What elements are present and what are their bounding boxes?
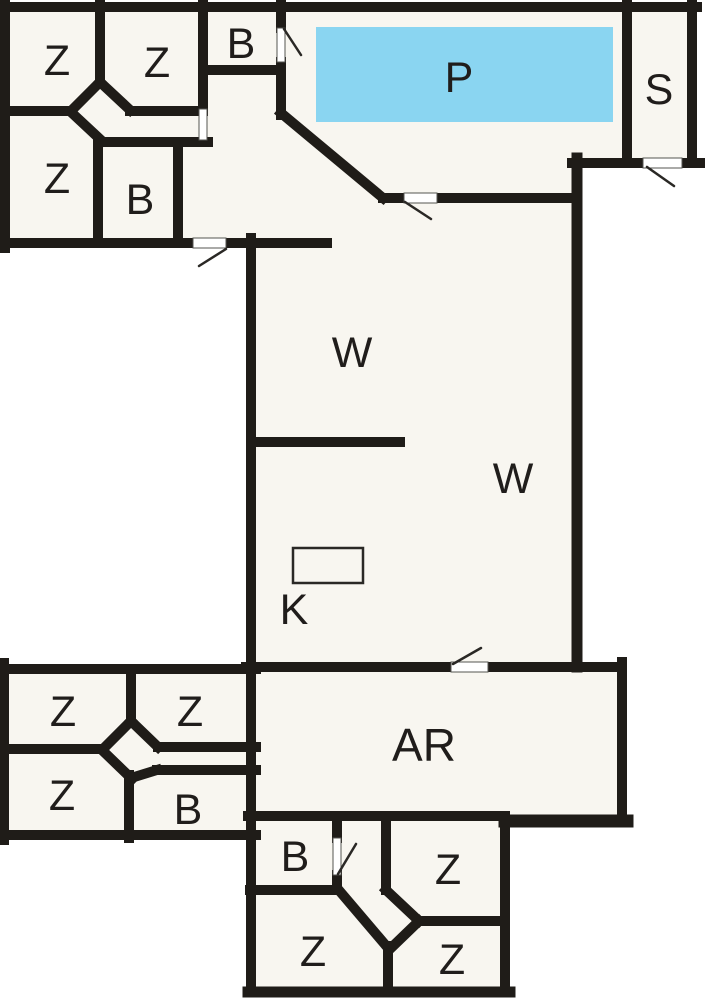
room-label-bedroom-nw-3: Z: [44, 155, 70, 203]
room-label-living-lower: W: [493, 455, 534, 503]
room-label-bedroom-sw-2: Z: [177, 688, 203, 736]
door-swing-nw-cluster-exit: [199, 249, 226, 266]
door-leaf-nw-corridor: [199, 109, 207, 140]
room-label-bedroom-sw-1: Z: [50, 688, 76, 736]
door-leaf-hall-ar: [451, 662, 488, 672]
room-label-bath-sw: B: [174, 786, 203, 834]
floor-plan: Z Z B Z B P S W W K AR Z Z Z B B Z Z Z: [0, 0, 705, 1000]
kitchen-counter: [293, 548, 363, 583]
room-label-bedroom-nw-2: Z: [144, 39, 170, 87]
room-label-kitchen: K: [280, 586, 309, 634]
building-footprint: [0, 2, 697, 997]
room-label-living-upper: W: [332, 329, 373, 377]
room-label-bedroom-s-2: Z: [300, 928, 326, 976]
door-leaf-north-bath: [277, 28, 285, 62]
door-leaf-sauna: [643, 158, 682, 168]
room-label-bedroom-s-1: Z: [435, 846, 461, 894]
room-label-bath-nw: B: [126, 176, 155, 224]
room-label-bedroom-nw-1: Z: [44, 37, 70, 85]
room-label-pool: P: [445, 54, 474, 102]
room-label-bedroom-s-3: Z: [439, 936, 465, 984]
room-label-sauna: S: [645, 66, 674, 114]
door-swing-sauna: [647, 167, 674, 186]
floor-plan-svg: Z Z B Z B P S W W K AR Z Z Z B B Z Z Z: [0, 0, 705, 1000]
room-label-activity-room: AR: [392, 719, 456, 771]
door-leaf-nw-cluster-exit: [193, 238, 226, 248]
room-label-bath-north: B: [227, 20, 256, 68]
door-leaf-pool-hall: [404, 193, 437, 203]
room-label-bath-south: B: [281, 833, 310, 881]
room-label-bedroom-sw-3: Z: [49, 772, 75, 820]
